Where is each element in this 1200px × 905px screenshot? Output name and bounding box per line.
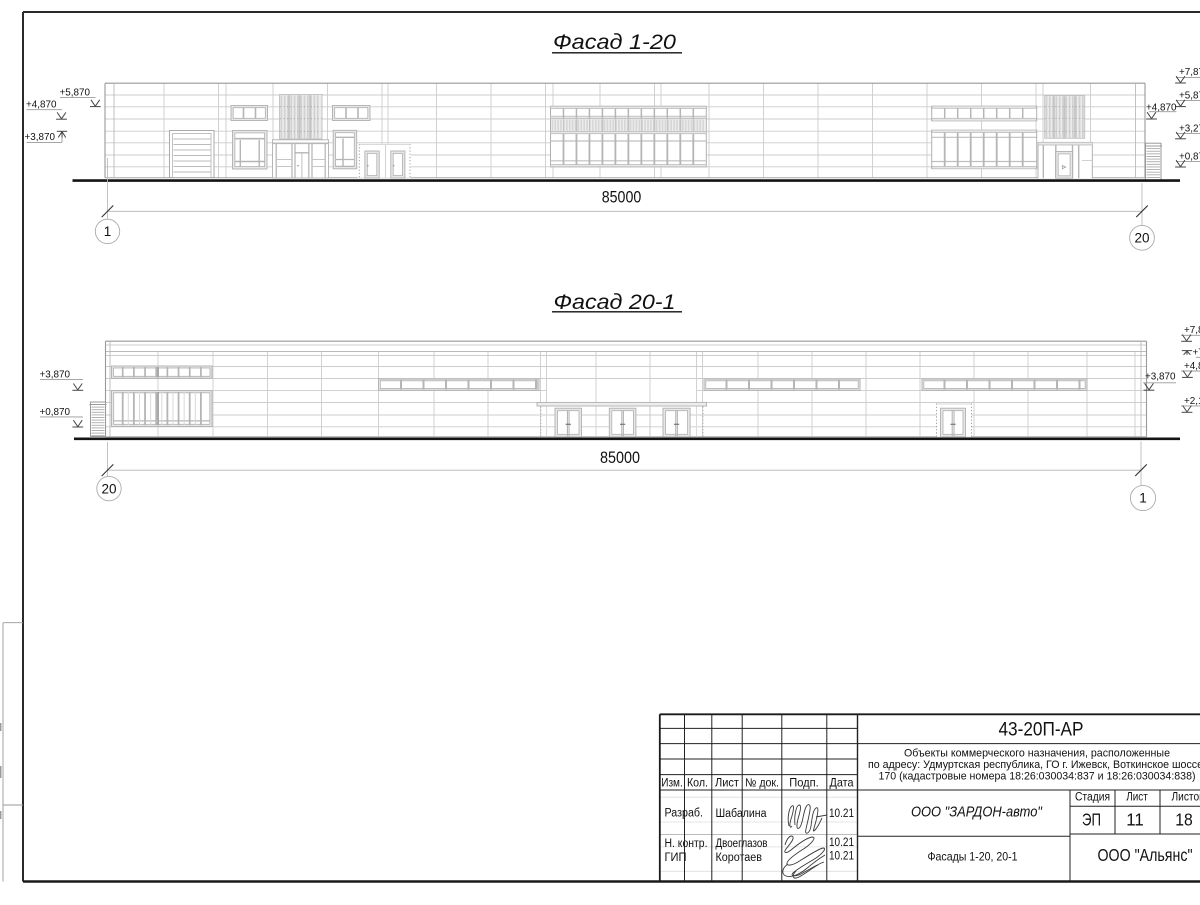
svg-text:+7,870: +7,870: [1179, 66, 1200, 78]
svg-text:+3,270: +3,270: [1179, 123, 1200, 135]
svg-text:85000: 85000: [600, 449, 640, 467]
svg-text:Лист: Лист: [1126, 791, 1148, 803]
svg-text:Коротаев: Коротаев: [716, 852, 763, 864]
svg-text:43-20П-АР: 43-20П-АР: [999, 720, 1084, 741]
svg-text:ООО "ЗАРДОН-авто": ООО "ЗАРДОН-авто": [911, 803, 1043, 820]
svg-text:Подп.: Подп.: [789, 775, 819, 789]
svg-text:85000: 85000: [602, 189, 642, 207]
svg-text:Листов: Листов: [1172, 791, 1200, 803]
svg-text:ЭП: ЭП: [1082, 809, 1101, 829]
svg-text:Фасад 1-20: Фасад 1-20: [553, 30, 676, 54]
svg-text:Двоеглазов: Двоеглазов: [716, 838, 768, 850]
svg-text:+3,870: +3,870: [40, 368, 71, 380]
svg-text:+5,870: +5,870: [1179, 89, 1200, 101]
svg-text:170 (кадастровые номера 18:26:: 170 (кадастровые номера 18:26:030034:837…: [879, 771, 1196, 783]
svg-text:Кол.: Кол.: [687, 775, 708, 789]
svg-text:20: 20: [101, 481, 116, 496]
svg-text:+4,870: +4,870: [1184, 360, 1200, 372]
svg-text:+7,870: +7,870: [1184, 324, 1200, 336]
svg-text:Объекты коммерческого назначен: Объекты коммерческого назначения, распол…: [904, 748, 1170, 760]
svg-text:+2,120: +2,120: [1184, 395, 1200, 407]
svg-text:+4,870: +4,870: [26, 99, 57, 111]
svg-text:по адресу: Удмуртская республи: по адресу: Удмуртская республика, ГО г. …: [868, 759, 1200, 771]
svg-text:Дата: Дата: [830, 775, 854, 789]
svg-text:1: 1: [1139, 491, 1147, 506]
svg-text:+7,370: +7,370: [1193, 346, 1200, 358]
svg-text:ГИП: ГИП: [665, 852, 687, 864]
svg-text:10.21: 10.21: [829, 851, 854, 863]
svg-text:Стадия: Стадия: [1075, 791, 1110, 803]
svg-text:Фасады 1-20, 20-1: Фасады 1-20, 20-1: [928, 849, 1018, 863]
svg-text:11: 11: [1126, 809, 1144, 829]
svg-text:ООО "Альянс": ООО "Альянс": [1098, 845, 1193, 865]
svg-text:+0,870: +0,870: [40, 406, 71, 418]
svg-text:20: 20: [1134, 231, 1149, 246]
svg-text:Фасад 20-1: Фасад 20-1: [554, 290, 676, 314]
svg-text:Изм.: Изм.: [661, 775, 683, 789]
svg-text:10.21: 10.21: [829, 837, 854, 849]
svg-text:Разраб.: Разраб.: [665, 808, 704, 820]
svg-text:№ док.: № док.: [745, 775, 779, 789]
svg-text:+5,870: +5,870: [60, 87, 91, 99]
svg-text:+3,870: +3,870: [25, 131, 56, 143]
svg-text:Н. контр.: Н. контр.: [665, 838, 708, 850]
svg-text:18: 18: [1175, 809, 1193, 829]
svg-text:Шабалина: Шабалина: [716, 808, 768, 820]
svg-text:+0,870: +0,870: [1179, 151, 1200, 163]
svg-text:10.21: 10.21: [829, 808, 854, 820]
svg-text:1: 1: [104, 224, 112, 239]
svg-text:+3,870: +3,870: [1145, 371, 1176, 383]
svg-text:Лист: Лист: [715, 775, 740, 789]
